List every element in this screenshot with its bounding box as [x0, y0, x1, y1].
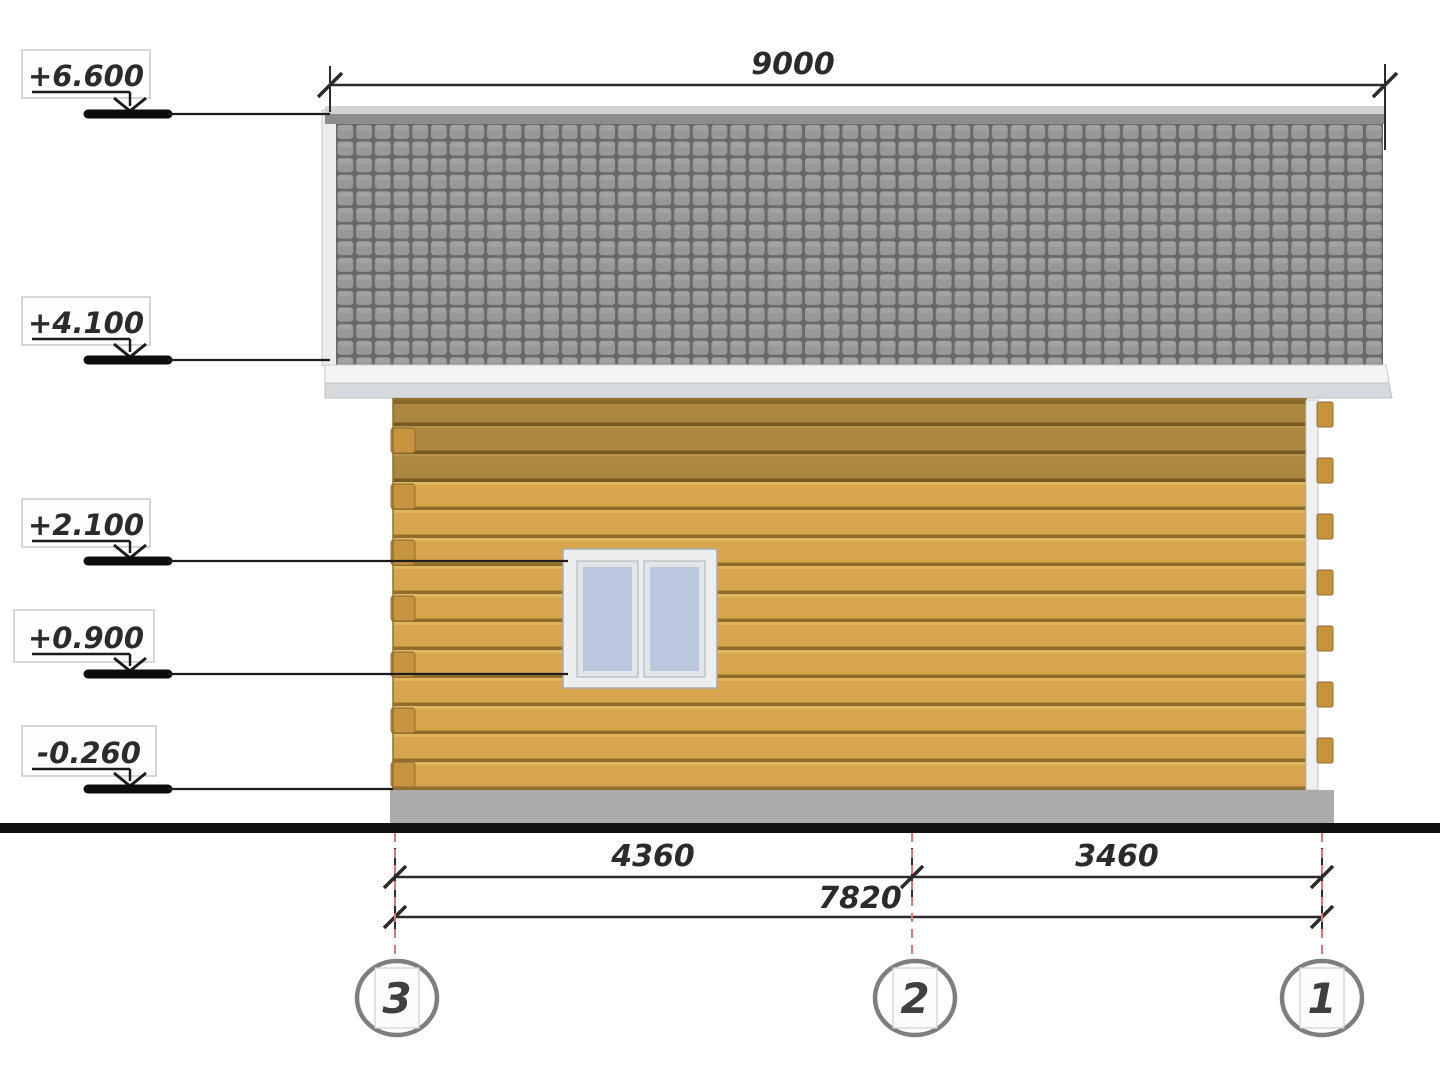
wall-eaves-shadow [393, 398, 1307, 404]
roof-fascia-white [325, 365, 1389, 383]
axis-bubble-2: 2 [875, 961, 955, 1035]
roof-tile-field [336, 124, 1383, 365]
dimension-text-4360: 4360 [610, 839, 695, 874]
elevation-marker-minus0260: -0.260 [22, 726, 393, 789]
bottom-dimensions: 4360 3460 7820 [384, 839, 1333, 935]
window-glass-right [650, 567, 699, 671]
elevation-label: -0.260 [37, 736, 141, 770]
axis-bubble-3: 3 [357, 961, 437, 1035]
roof-ridge-strip [325, 114, 1385, 124]
elevation-label: +0.900 [28, 621, 144, 655]
wall [391, 398, 1333, 790]
axis-number: 1 [1307, 974, 1336, 1023]
wall-siding-shadow-band [393, 398, 1307, 482]
axis-number: 3 [382, 974, 411, 1023]
axis-bubble-1: 1 [1282, 961, 1362, 1035]
roof [322, 106, 1392, 398]
window [563, 549, 717, 688]
elevation-label: +2.100 [28, 508, 144, 542]
elevation-label: +6.600 [28, 59, 144, 93]
corner-board [1306, 400, 1318, 790]
axis-number: 2 [900, 974, 929, 1023]
roof-top-edge [325, 106, 1385, 114]
roof-left-trim [322, 110, 338, 366]
elevation-drawing: +6.600 +4.100 +2.100 +0.900 [0, 0, 1440, 1080]
elevation-marker-4100: +4.100 [22, 297, 330, 360]
window-glass-left [583, 567, 632, 671]
foundation [390, 790, 1334, 825]
elevation-label: +4.100 [28, 306, 144, 340]
dimension-text-3460: 3460 [1075, 839, 1159, 874]
right-log-ends [1317, 402, 1333, 763]
dimension-text-9000: 9000 [751, 47, 835, 82]
roof-fascia-gray [325, 383, 1392, 398]
elevation-drawing-canvas: +6.600 +4.100 +2.100 +0.900 [0, 0, 1440, 1080]
dimension-text-7820: 7820 [818, 881, 902, 916]
elevation-marker-6600: +6.600 [22, 50, 330, 114]
